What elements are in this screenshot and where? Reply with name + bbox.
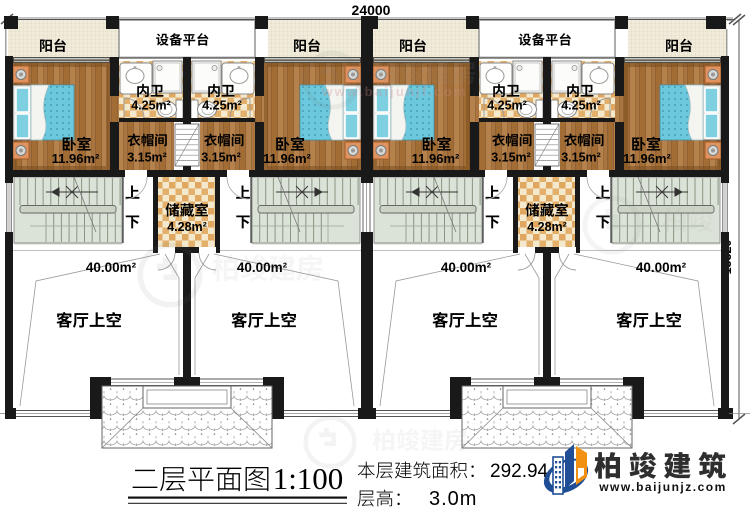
svg-text:4.25m²: 4.25m²	[561, 99, 601, 113]
svg-text:11.96m²: 11.96m²	[623, 151, 671, 166]
svg-text:4.25m²: 4.25m²	[202, 99, 242, 113]
svg-text:40.00m²: 40.00m²	[441, 260, 492, 275]
svg-text:www.baijunjz.com: www.baijunjz.com	[598, 480, 727, 494]
svg-text:3.0m: 3.0m	[429, 488, 477, 510]
svg-text:24000: 24000	[352, 2, 391, 18]
svg-text:www.baijunjf.com: www.baijunjf.com	[321, 84, 467, 99]
svg-text:4.25m²: 4.25m²	[487, 99, 527, 113]
svg-text:292.94: 292.94	[490, 461, 549, 482]
svg-text:40.00m²: 40.00m²	[86, 260, 137, 275]
svg-text:3.15m²: 3.15m²	[491, 151, 531, 165]
svg-text:3.15m²: 3.15m²	[201, 151, 241, 165]
svg-text:11.96m²: 11.96m²	[52, 151, 100, 166]
svg-text:4.25m²: 4.25m²	[131, 99, 171, 113]
svg-text:3.15m²: 3.15m²	[127, 151, 167, 165]
svg-text:11.96m²: 11.96m²	[263, 151, 311, 166]
svg-text:1:100: 1:100	[273, 461, 344, 496]
svg-text:3.15m²: 3.15m²	[561, 151, 601, 165]
svg-text:11.96m²: 11.96m²	[412, 151, 460, 166]
svg-text:4.28m²: 4.28m²	[167, 220, 207, 234]
svg-text:40.00m²: 40.00m²	[636, 260, 687, 275]
svg-text:4.28m²: 4.28m²	[527, 220, 567, 234]
